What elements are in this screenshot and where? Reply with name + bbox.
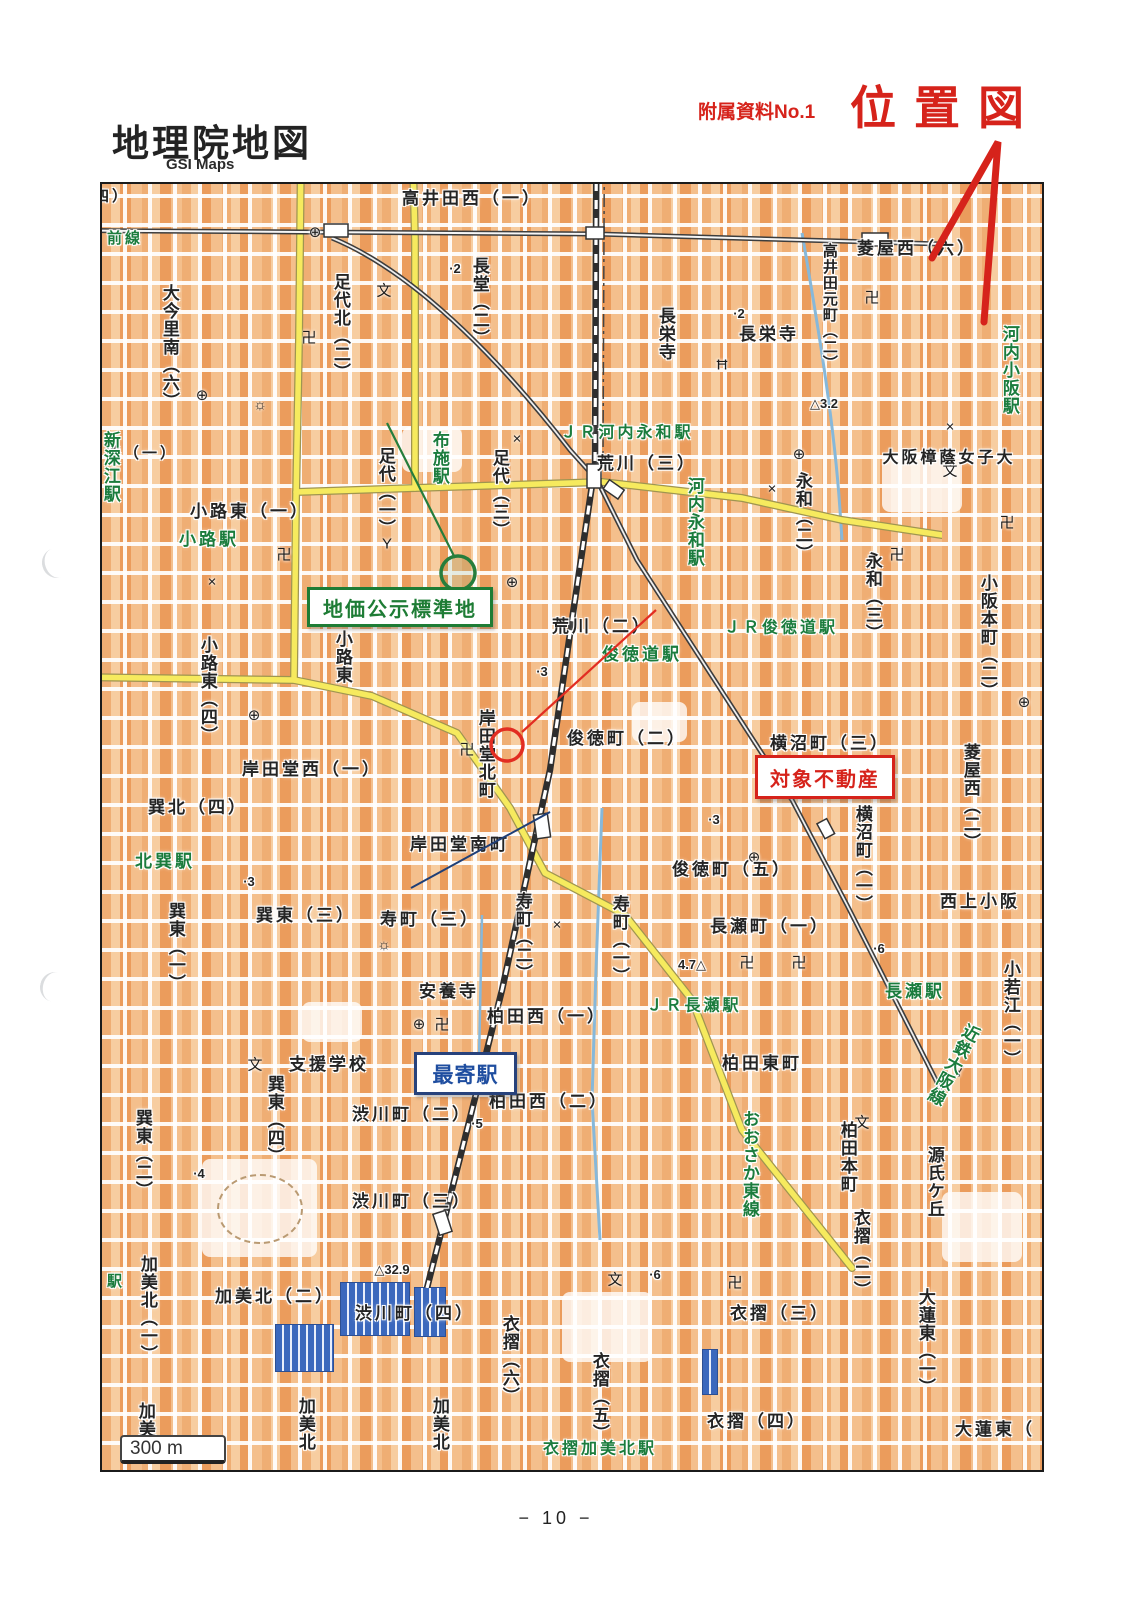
map-label: 菱屋西（二） — [961, 743, 979, 851]
subject-property-marker — [491, 729, 523, 761]
map-symbol-icon: × — [946, 419, 955, 436]
factory-building — [702, 1349, 718, 1395]
map-label: 加美北 — [296, 1397, 314, 1451]
map-label: 河内小阪駅 — [1000, 325, 1018, 415]
page-title: 位置図 — [850, 72, 1042, 138]
nearest-station-label-box: 最寄駅 — [414, 1052, 517, 1095]
gsi-map-canvas: 479 四）高井田西（一）菱屋西（六）長栄寺荒川（三）大阪樟蔭女子大路（一）小路… — [100, 182, 1044, 1472]
standard-site-label-box: 地価公示標準地 — [307, 587, 493, 627]
map-label: 衣摺（四） — [707, 1413, 807, 1431]
marker-layer — [100, 182, 942, 1288]
map-label: 西上小阪 — [940, 893, 1020, 911]
factory-building — [275, 1324, 334, 1372]
map-label: 大蓮東（ — [955, 1421, 1035, 1439]
scan-smudge — [38, 544, 75, 581]
map-label: 加美北（二） — [215, 1288, 335, 1306]
document-page: { "header": { "title": "地理院地図", "subtitl… — [0, 0, 1132, 1600]
map-scale-bar: 300 m — [120, 1435, 226, 1464]
map-label: 加美 — [136, 1402, 154, 1438]
standard-site-marker — [441, 556, 475, 590]
open-area — [942, 1192, 1022, 1262]
map-label: 衣摺（五） — [590, 1352, 608, 1442]
map-scale-label: 300 m — [130, 1438, 183, 1460]
map-label: 小阪本町（二） — [978, 574, 996, 700]
map-label: 衣摺（三） — [730, 1305, 830, 1323]
standard-site-leader — [387, 423, 455, 558]
map-label: 大蓮東（一） — [916, 1288, 934, 1396]
map-label: 渋川町（四） — [355, 1305, 475, 1323]
attachment-ref: 附属資料No.1 — [698, 97, 815, 124]
map-symbol-icon: ⊕ — [1018, 693, 1031, 711]
map-label: 加美北 — [430, 1397, 448, 1451]
scan-smudge — [37, 969, 72, 1005]
map-label: 衣摺（六） — [500, 1315, 518, 1405]
nearest-station-leader — [411, 812, 550, 888]
subject-property-leader — [522, 610, 656, 732]
map-label: 小若江（一） — [1001, 960, 1019, 1068]
page-number: − 10 − — [518, 1508, 593, 1529]
map-label: 衣摺加美北駅 — [543, 1442, 657, 1459]
map-symbol-icon: 卍 — [999, 512, 1014, 533]
subject-property-label-box: 対象不動産 — [755, 755, 895, 799]
gsi-map-subtitle: GSI Maps — [166, 156, 234, 173]
